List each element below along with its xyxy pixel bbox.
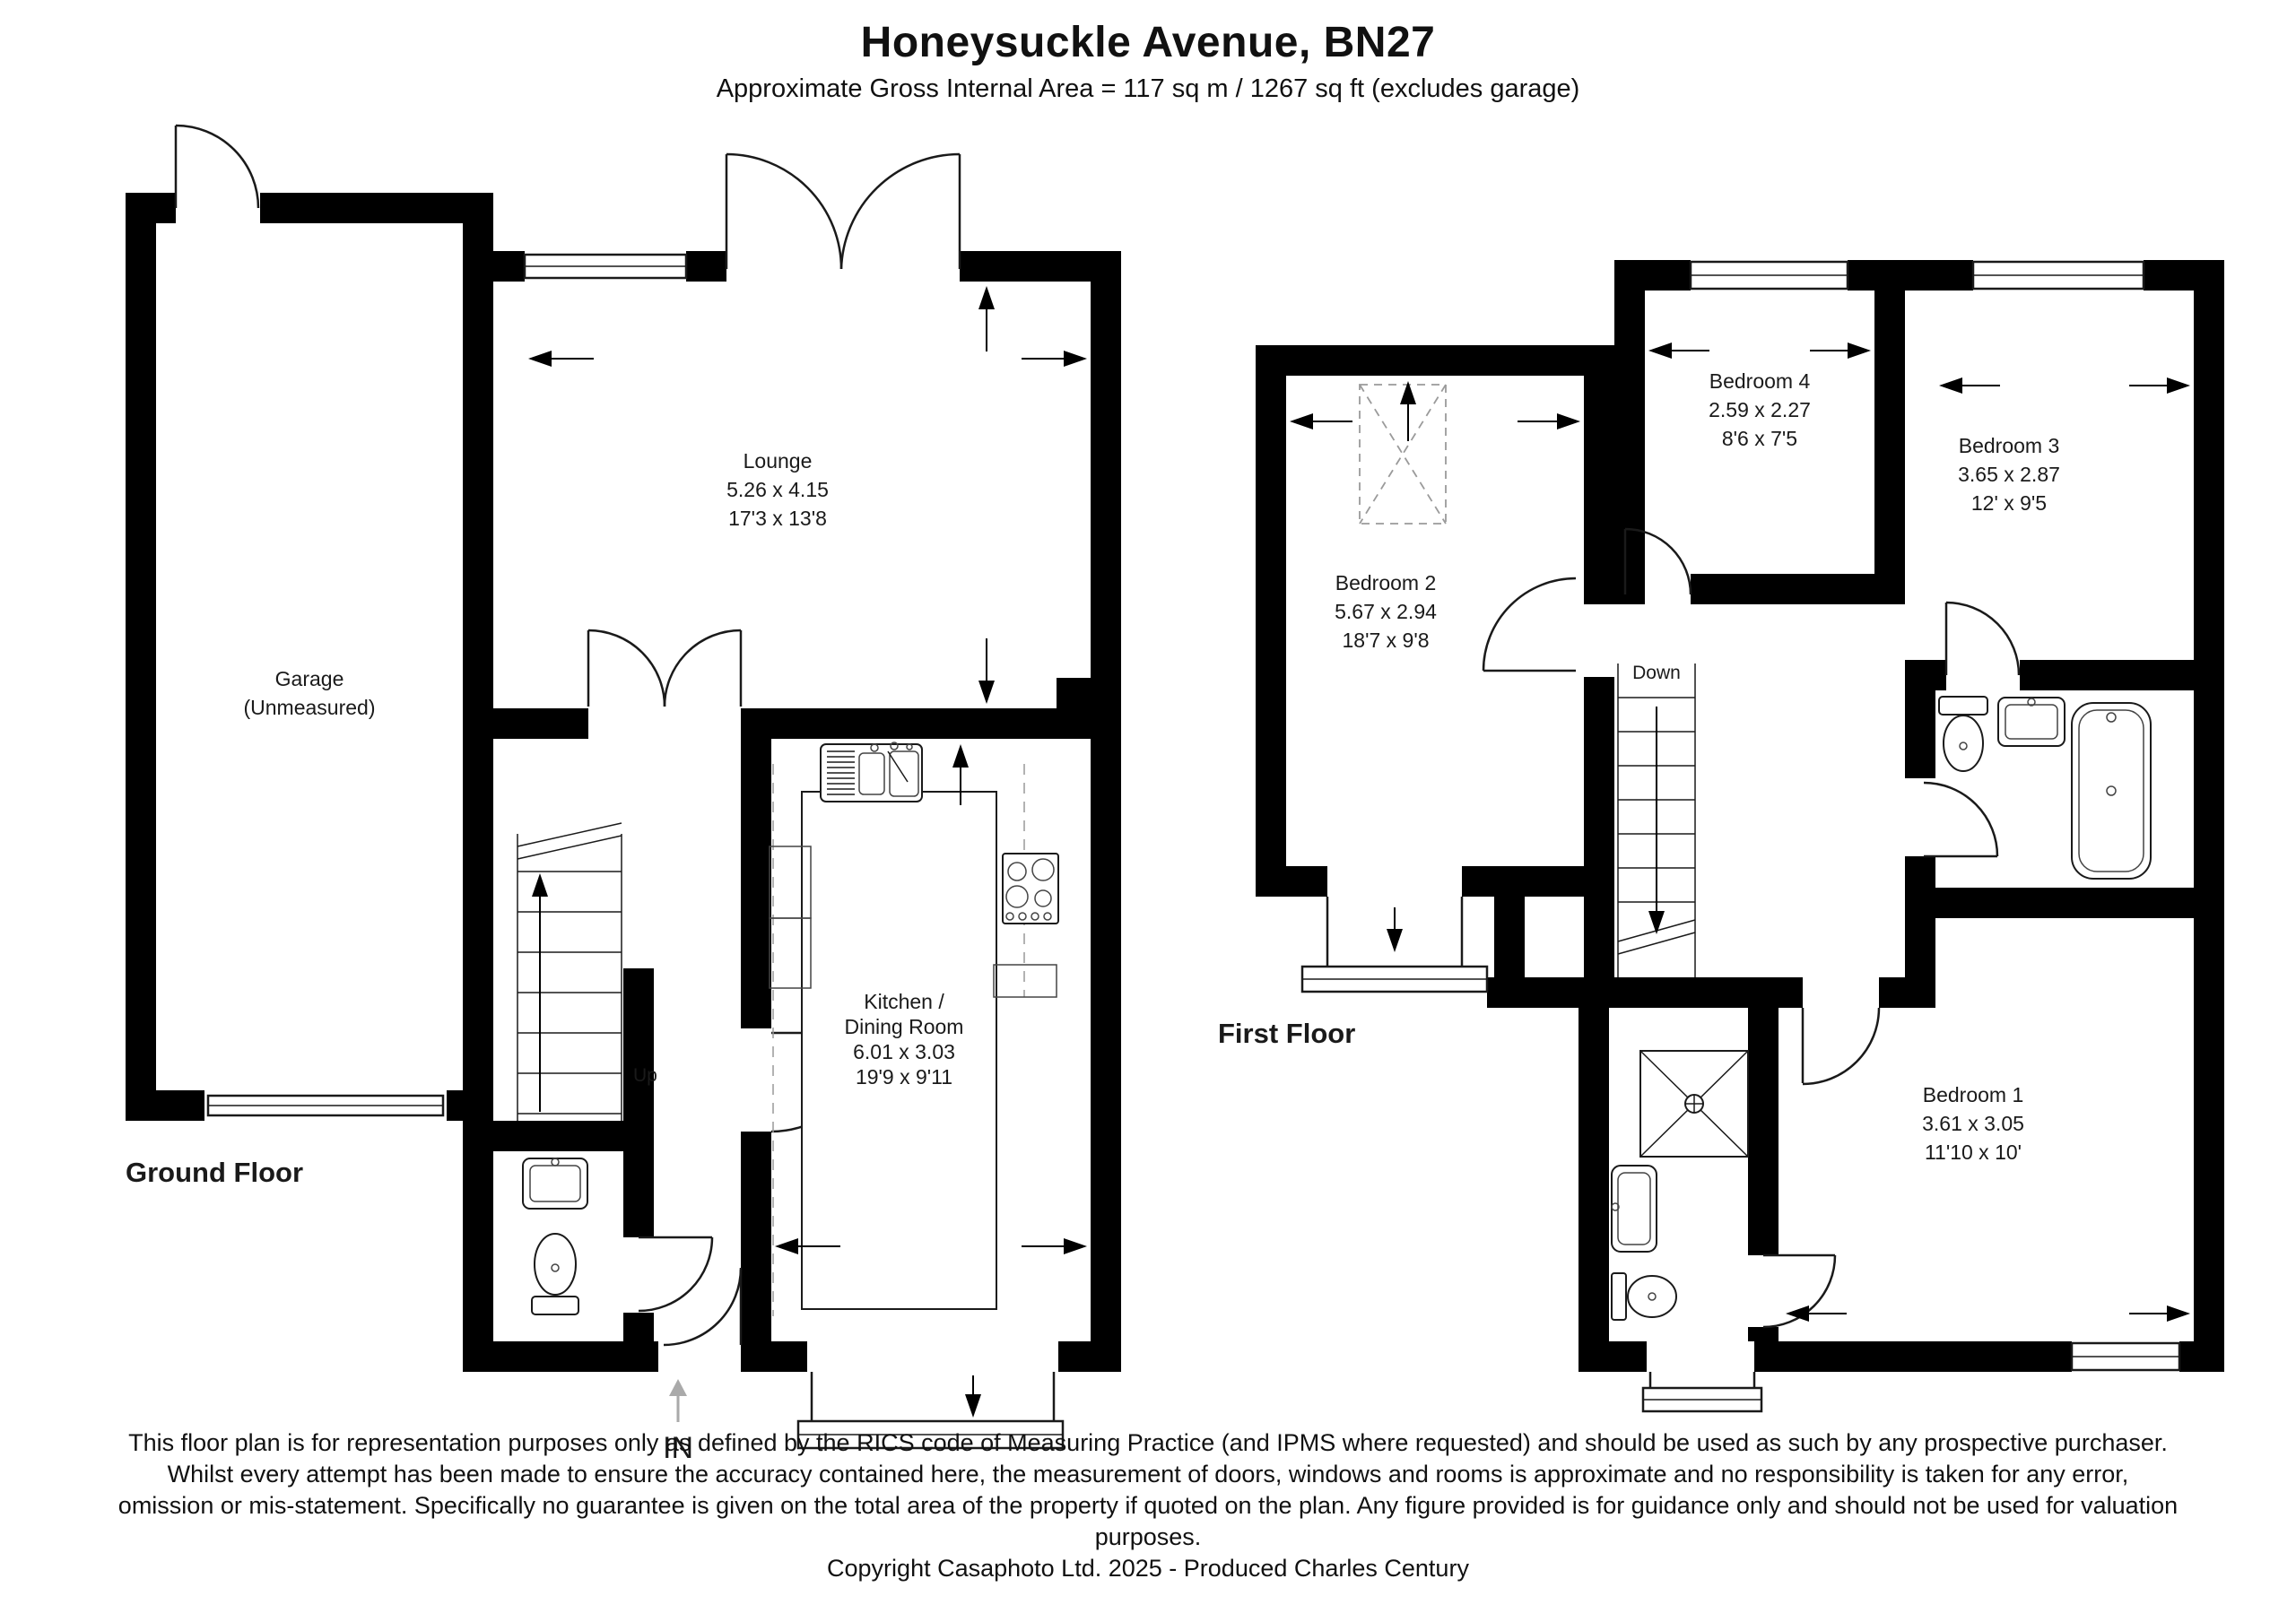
svg-text:17'3 x 13'8: 17'3 x 13'8 <box>728 507 827 530</box>
lounge-french-doors <box>726 154 960 269</box>
bedroom1-window <box>2072 1343 2179 1370</box>
svg-text:18'7 x 9'8: 18'7 x 9'8 <box>1342 629 1429 652</box>
bathroom-door-arc <box>1924 783 1997 856</box>
stairs-down: Down <box>1618 663 1695 977</box>
bathroom-toilet-icon <box>1939 697 1987 771</box>
bedroom1-door-arc <box>1803 1008 1879 1084</box>
ensuite-sink-icon <box>1612 1166 1657 1252</box>
svg-text:(Unmeasured): (Unmeasured) <box>244 696 376 719</box>
svg-text:12' x 9'5: 12' x 9'5 <box>1971 491 2047 515</box>
kitchen-room-label: Kitchen / Dining Room 6.01 x 3.03 19'9 x… <box>830 990 978 1096</box>
bedroom2-room-label: Bedroom 2 5.67 x 2.94 18'7 x 9'8 <box>1335 571 1437 652</box>
ground-floor-plan: Up <box>126 126 1121 1465</box>
svg-text:3.61 x 3.05: 3.61 x 3.05 <box>1922 1112 2024 1135</box>
svg-text:Bedroom 3: Bedroom 3 <box>1959 434 2060 457</box>
svg-text:5.67 x 2.94: 5.67 x 2.94 <box>1335 600 1437 623</box>
svg-text:Bedroom 1: Bedroom 1 <box>1923 1083 2024 1106</box>
ground-floor-title: Ground Floor <box>126 1157 303 1188</box>
sheet-footer: This floor plan is for representation pu… <box>117 1427 2179 1584</box>
stairs-up-label: Up <box>633 1065 657 1086</box>
svg-text:11'10 x 10': 11'10 x 10' <box>1925 1141 2022 1164</box>
shower-icon <box>1640 1051 1748 1157</box>
ensuite-bay-window <box>1643 1372 1761 1411</box>
wc-door-arc <box>639 1237 712 1311</box>
floorplan-sheet: Honeysuckle Avenue, BN27 Approximate Gro… <box>0 0 2296 1622</box>
svg-text:19'9 x 9'11: 19'9 x 9'11 <box>856 1065 952 1089</box>
bedroom2-door-arc <box>1483 578 1576 671</box>
bathroom-sink-icon <box>1998 698 2065 746</box>
disclaimer-text: This floor plan is for representation pu… <box>117 1427 2179 1553</box>
first-floor-plan: Down <box>1218 260 2224 1411</box>
front-door-arc <box>664 1268 741 1345</box>
svg-text:3.65 x 2.87: 3.65 x 2.87 <box>1958 463 2060 486</box>
svg-text:Garage: Garage <box>275 667 344 690</box>
bedroom4-window <box>1691 262 1848 289</box>
svg-text:5.26 x 4.15: 5.26 x 4.15 <box>726 478 829 501</box>
copyright-text: Copyright Casaphoto Ltd. 2025 - Produced… <box>117 1553 2179 1584</box>
svg-text:Dining Room: Dining Room <box>845 1015 964 1038</box>
garage-side-door-arc <box>176 126 258 208</box>
bedroom3-room-label: Bedroom 3 3.65 x 2.87 12' x 9'5 <box>1958 434 2060 515</box>
kitchen-sink-icon <box>821 742 922 802</box>
garage-door <box>208 1096 443 1115</box>
wc-toilet-icon <box>532 1234 578 1314</box>
svg-text:Lounge: Lounge <box>744 449 813 473</box>
wardrobe-dashed <box>1360 385 1446 524</box>
lounge-window <box>525 255 686 278</box>
lounge-room-label: Lounge 5.26 x 4.15 17'3 x 13'8 <box>726 449 829 530</box>
bedroom3-window <box>1973 262 2144 289</box>
bedroom4-room-label: Bedroom 4 2.59 x 2.27 8'6 x 7'5 <box>1709 369 1811 450</box>
svg-text:2.59 x 2.27: 2.59 x 2.27 <box>1709 398 1811 421</box>
bedroom1-room-label: Bedroom 1 3.61 x 3.05 11'10 x 10' <box>1922 1083 2024 1164</box>
floorplan-drawing: Up <box>0 0 2296 1622</box>
entrance-arrow-icon <box>669 1379 687 1396</box>
bath-icon <box>2072 703 2151 879</box>
svg-text:Bedroom 2: Bedroom 2 <box>1335 571 1437 594</box>
lounge-double-door-arc <box>588 630 741 707</box>
bathroom-fixtures <box>1939 697 2151 879</box>
ensuite-fixtures <box>1612 1051 1748 1320</box>
garage-room-label: Garage (Unmeasured) <box>244 667 376 719</box>
svg-text:Bedroom 4: Bedroom 4 <box>1709 369 1811 393</box>
wc-room <box>523 1158 587 1314</box>
svg-text:Kitchen /: Kitchen / <box>864 990 944 1013</box>
svg-text:6.01 x 3.03: 6.01 x 3.03 <box>853 1040 955 1063</box>
hob-icon <box>1003 854 1058 924</box>
first-floor-title: First Floor <box>1218 1018 1355 1049</box>
bedroom3-door-arc <box>1946 603 2019 675</box>
first-dimension-arrows <box>1290 343 2190 1322</box>
stairs-down-label: Down <box>1632 663 1681 683</box>
ensuite-toilet-icon <box>1612 1273 1676 1320</box>
svg-text:8'6 x 7'5: 8'6 x 7'5 <box>1722 427 1797 450</box>
